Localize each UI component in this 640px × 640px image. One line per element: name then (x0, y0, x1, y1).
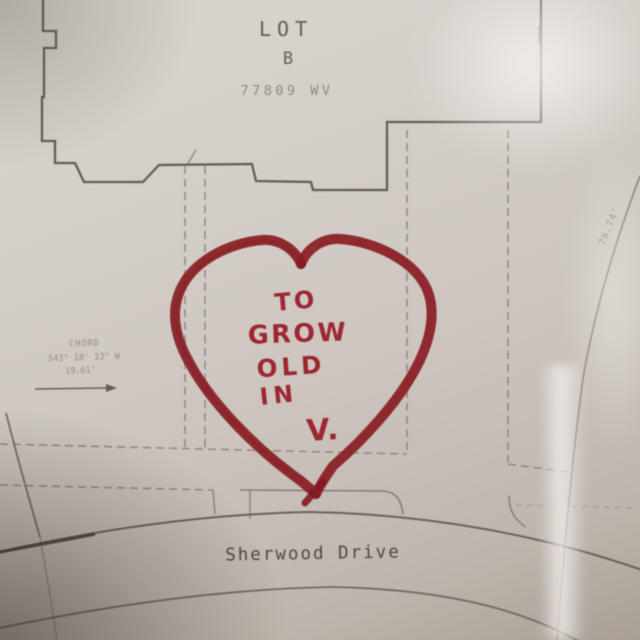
left-boundary-curve-lower (40, 537, 57, 640)
lot-label: LOT (259, 17, 313, 41)
heart-message-line-3: OLD (256, 350, 327, 384)
lot-letter: B (283, 49, 293, 69)
lot-tick-1 (213, 490, 215, 514)
heart-message-line-1: TO (273, 285, 318, 317)
chord-arrow-head (106, 384, 117, 392)
lot-line-dashed-horizontal-lower (0, 485, 213, 490)
door-swing-line (187, 150, 196, 165)
chord-arrow-line (35, 388, 106, 389)
photographed-plot-plan: LOT B 77809 WV CHORD S43° 18' 23" W 19.6… (0, 0, 640, 640)
chord-annotation: CHORD S43° 18' 23" W 19.61' (48, 338, 122, 378)
heart-message-line-2: GROW (247, 317, 348, 350)
lot-area-label: 77809 WV (240, 83, 333, 99)
paper-sheen-right-edge (550, 110, 640, 490)
chord-length: 19.61' (65, 366, 96, 377)
street-edge-top-dark (0, 534, 95, 553)
street-name-label: Sherwood Drive (225, 542, 401, 565)
chord-label: CHORD (69, 338, 100, 349)
heart-message: TO GROW OLD IN V. (247, 285, 348, 449)
lot-hook-line (509, 496, 526, 527)
heart-message-line-5: V. (305, 412, 340, 449)
left-boundary-curve (6, 413, 40, 537)
heart-message-line-4: IN (258, 379, 299, 411)
street-edge-bottom (0, 587, 580, 640)
chord-bearing: S43° 18' 23" W (48, 352, 121, 365)
